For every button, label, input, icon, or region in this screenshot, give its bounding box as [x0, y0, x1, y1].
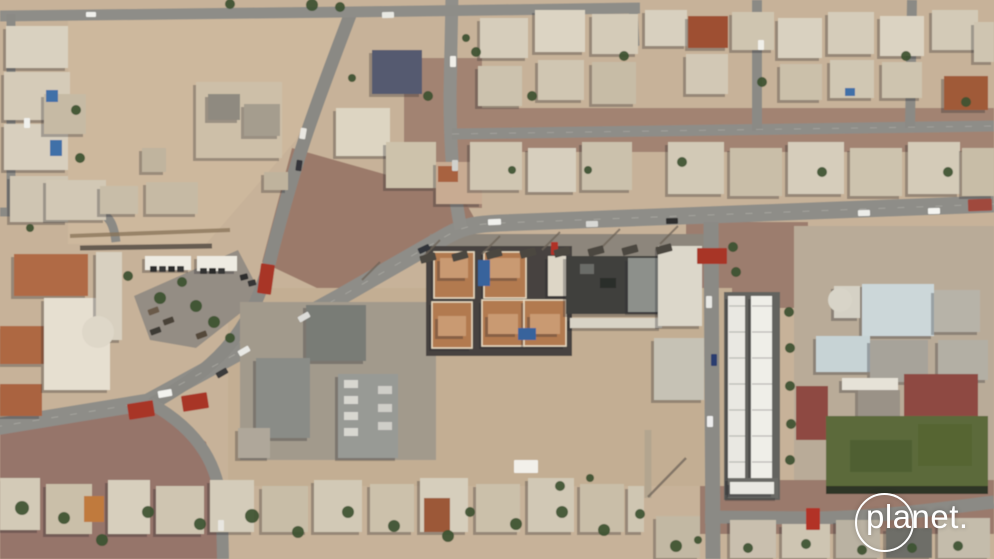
tree	[142, 506, 154, 518]
building	[580, 264, 594, 274]
orange-canopy	[84, 496, 104, 522]
building	[378, 422, 392, 430]
pool	[478, 260, 490, 286]
pool	[46, 90, 58, 102]
vehicle	[177, 266, 184, 272]
vehicle	[218, 268, 225, 274]
tree	[694, 536, 702, 544]
building	[238, 428, 270, 458]
vehicle	[928, 208, 940, 214]
tree	[584, 166, 592, 174]
building	[934, 290, 980, 332]
tree	[785, 381, 795, 391]
tree	[619, 51, 629, 61]
building	[480, 18, 528, 58]
tree	[471, 47, 481, 57]
building	[108, 480, 150, 534]
building	[592, 14, 638, 54]
tree	[225, 333, 235, 343]
tree	[953, 541, 963, 551]
building	[686, 54, 728, 94]
tree	[586, 474, 594, 482]
building	[730, 148, 782, 196]
tree	[442, 530, 454, 542]
building	[850, 148, 902, 196]
building	[882, 62, 922, 98]
building	[570, 318, 662, 328]
building	[210, 480, 254, 532]
tree	[757, 77, 767, 87]
building	[658, 246, 702, 326]
tree	[15, 501, 29, 515]
shadow-line	[80, 246, 212, 248]
building	[142, 148, 166, 172]
vehicle	[218, 520, 224, 531]
building	[828, 12, 874, 54]
east-road	[711, 222, 713, 559]
vehicle	[24, 118, 30, 128]
tree	[857, 545, 867, 555]
building	[592, 62, 636, 104]
tree	[335, 2, 345, 12]
red-road-segment	[968, 199, 992, 212]
building	[256, 358, 310, 438]
building	[538, 60, 584, 100]
building	[732, 12, 774, 50]
building	[488, 314, 518, 334]
tree	[342, 506, 354, 518]
red-road-segment	[806, 508, 820, 530]
tree	[731, 267, 741, 277]
tree	[292, 526, 304, 538]
vehicle	[168, 266, 175, 272]
tree	[388, 520, 400, 532]
building	[780, 64, 822, 100]
building	[244, 104, 280, 136]
building	[478, 66, 522, 106]
building	[344, 428, 358, 436]
satellite-canvas	[0, 0, 994, 559]
tree	[961, 97, 971, 107]
tree	[527, 91, 537, 101]
tree	[245, 509, 259, 523]
orange-roof-building	[14, 254, 88, 296]
terracotta-roof	[424, 498, 450, 532]
building	[582, 142, 632, 190]
tree	[194, 518, 206, 530]
sports-field	[918, 424, 972, 466]
tree	[348, 74, 356, 82]
sport-court	[904, 374, 978, 416]
tree	[96, 534, 108, 546]
tree	[785, 455, 795, 465]
tree	[907, 543, 917, 553]
building	[378, 404, 392, 412]
building	[100, 186, 138, 214]
building	[974, 22, 994, 62]
building	[880, 16, 924, 56]
vehicle	[758, 40, 764, 50]
tree	[786, 419, 796, 429]
tree	[177, 277, 187, 287]
building	[378, 386, 392, 394]
tree	[208, 316, 220, 328]
building	[6, 26, 68, 68]
pool	[845, 88, 855, 96]
tree	[677, 157, 687, 167]
tree	[71, 105, 81, 115]
building	[306, 305, 366, 361]
building	[146, 182, 198, 214]
building	[858, 390, 900, 416]
scene-root	[0, 0, 994, 559]
tree	[598, 524, 610, 536]
tree	[465, 507, 475, 517]
red-roof-villa	[688, 16, 728, 48]
tree	[556, 506, 568, 518]
vehicle	[450, 56, 456, 67]
tree	[190, 300, 202, 312]
sports-field	[850, 440, 912, 472]
building	[344, 380, 358, 388]
tree	[670, 540, 682, 552]
dark-roof-house	[886, 528, 932, 558]
vehicle	[488, 219, 501, 225]
building	[842, 378, 898, 390]
vehicle	[711, 354, 717, 366]
school-roof	[862, 284, 934, 336]
tree	[635, 509, 645, 519]
vehicle	[666, 218, 678, 224]
vehicle	[200, 268, 207, 274]
building	[600, 278, 616, 288]
tree	[75, 153, 85, 163]
building	[668, 142, 724, 194]
building	[344, 412, 358, 420]
tree	[58, 512, 70, 524]
building	[535, 10, 585, 52]
building	[438, 316, 466, 336]
tree	[801, 539, 811, 549]
tree	[817, 167, 827, 177]
vehicle	[586, 221, 598, 227]
tree	[462, 34, 470, 42]
building	[528, 148, 576, 192]
building	[336, 108, 390, 156]
orange-roof-building	[0, 326, 44, 364]
building	[344, 396, 358, 404]
vehicle	[858, 210, 870, 216]
building	[654, 338, 704, 400]
building	[645, 10, 687, 46]
tree	[510, 518, 522, 530]
tree	[901, 51, 911, 61]
building	[962, 148, 994, 196]
tree	[743, 543, 753, 553]
building	[528, 478, 574, 532]
building	[490, 258, 520, 278]
tree	[423, 91, 433, 101]
building	[788, 142, 844, 194]
tree	[785, 343, 795, 353]
tree-shadow	[826, 486, 988, 494]
tree	[123, 271, 133, 281]
building	[470, 142, 522, 190]
school-roof	[816, 336, 870, 372]
red-road-segment	[697, 248, 727, 264]
vehicle	[382, 12, 394, 18]
pool	[50, 140, 62, 156]
building	[262, 486, 308, 532]
building	[386, 142, 436, 188]
building	[314, 480, 362, 532]
tree	[555, 481, 565, 491]
tree	[154, 292, 166, 304]
tree	[784, 307, 794, 317]
building	[208, 94, 240, 120]
building	[656, 516, 700, 558]
pool	[518, 328, 536, 340]
building	[264, 172, 288, 190]
building	[938, 518, 990, 558]
vehicle	[159, 266, 166, 272]
tree	[728, 242, 738, 252]
vehicle	[452, 160, 458, 171]
building	[730, 520, 776, 558]
tree	[26, 224, 34, 232]
parking-shade-row	[730, 482, 774, 494]
dome-roof	[828, 288, 852, 312]
tree	[508, 166, 516, 174]
vehicle	[209, 268, 216, 274]
satellite-image: planet.	[0, 0, 994, 559]
building	[778, 18, 822, 58]
vehicle	[514, 460, 538, 473]
vehicle	[150, 266, 157, 272]
blue-roof-villa	[372, 50, 422, 94]
round-building	[82, 316, 114, 348]
tree	[943, 167, 953, 177]
vehicle	[706, 296, 712, 308]
vehicle	[707, 416, 713, 427]
orange-roof-building	[0, 384, 42, 416]
sport-court	[796, 386, 828, 440]
building	[628, 486, 644, 532]
vehicle	[86, 12, 96, 17]
building	[908, 142, 960, 194]
